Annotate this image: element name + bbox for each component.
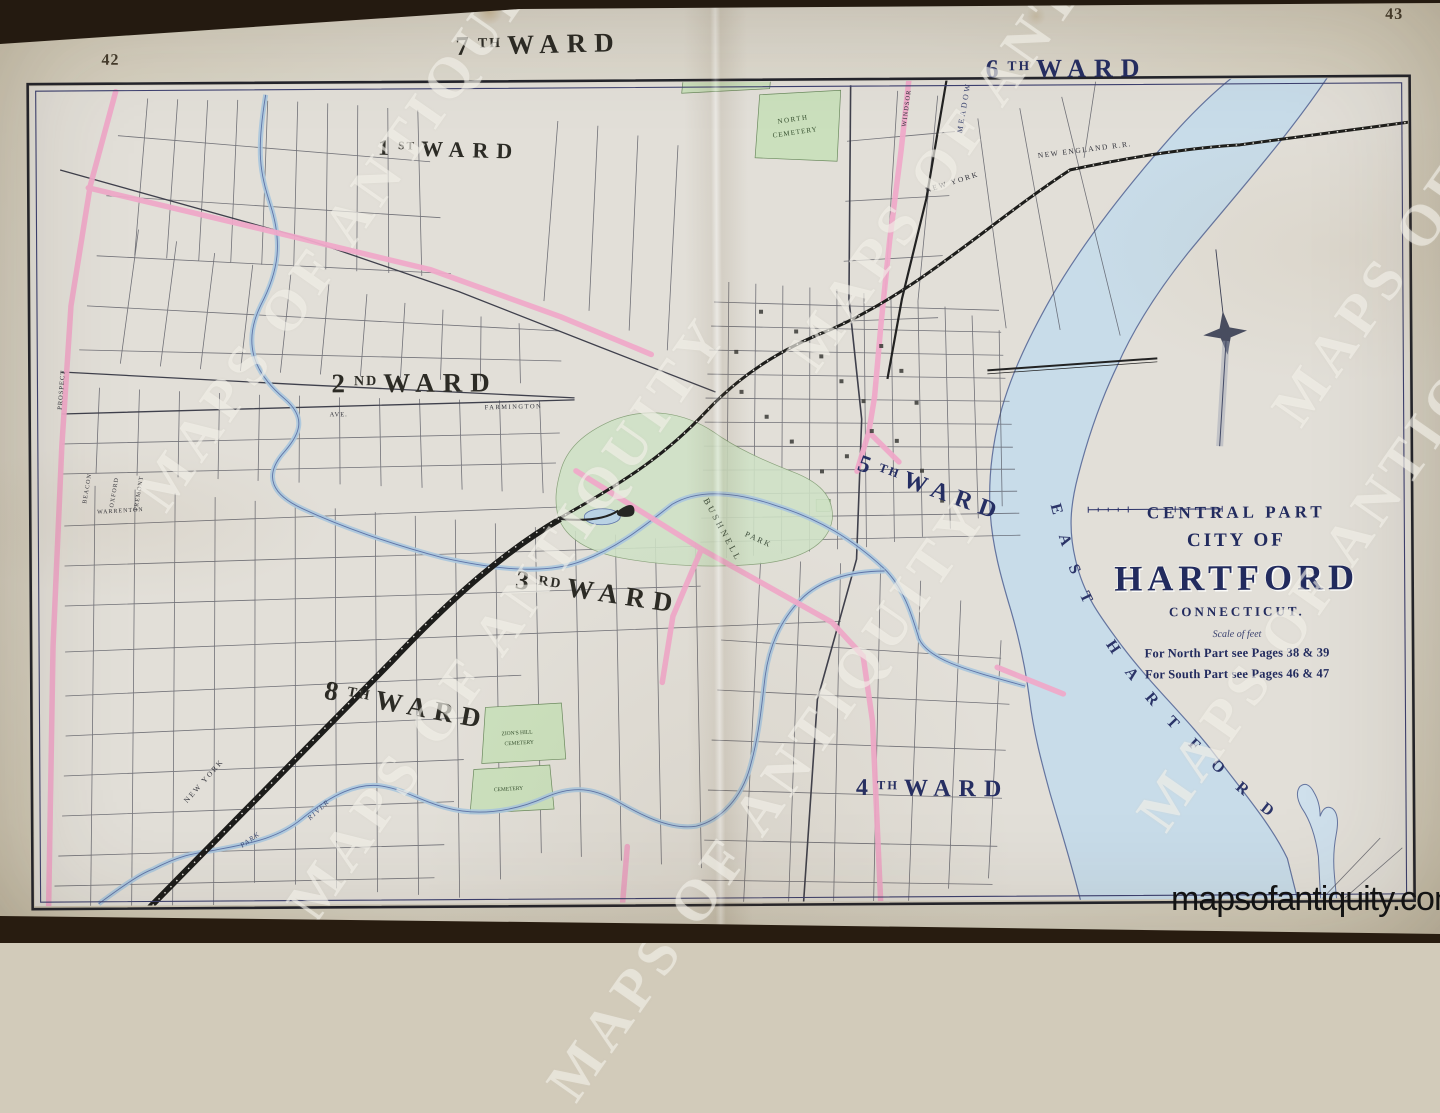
ward-label-6: 6THWARD [985, 55, 1147, 82]
ward-number: 7 [455, 31, 477, 61]
ward-ordinal: ND [354, 373, 378, 389]
ward-label-7: 7THWARD [455, 29, 622, 60]
ward-label-1: 1STWARD [378, 137, 521, 163]
ward-ordinal: TH [478, 35, 503, 52]
ward-label-2: 2NDWARD [331, 369, 497, 397]
antique-map-photo: { "page": { "left_page_number": "42", "r… [0, 0, 1440, 943]
ward-number: 1 [378, 135, 398, 161]
map-sheet: EAST HARTFORD FARMINGTON AVE. PROSPECT B… [0, 0, 1440, 947]
map-drawing: EAST HARTFORD FARMINGTON AVE. PROSPECT B… [0, 0, 1440, 947]
page-number-right: 43 [1385, 6, 1403, 24]
ward-word: WARD [1036, 53, 1148, 83]
stpatricks-label-1: ST. PATRICK'S [703, 61, 735, 68]
ward-word: WARD [421, 136, 521, 164]
note-south: For South Part see Pages 46 & 47 [1081, 666, 1393, 683]
ward-ordinal: TH [1007, 58, 1031, 73]
ward-ordinal: RD [537, 573, 563, 592]
scale-bar [1080, 503, 1230, 514]
title-block: CENTRAL PART CITY OF HARTFORD CONNECTICU… [1080, 502, 1393, 683]
ward-number: 3 [514, 564, 540, 597]
ward-number: 8 [322, 675, 349, 708]
website-text: mapsofantiquity.com [1171, 880, 1440, 919]
ward-number: 6 [985, 54, 1006, 83]
ward-ordinal: TH [346, 684, 373, 704]
ward-word: WARD [904, 775, 1010, 802]
ave-label: AVE. [330, 411, 348, 418]
ward-ordinal: TH [877, 778, 899, 792]
note-north: For North Part see Pages 38 & 39 [1081, 645, 1393, 662]
ward-ordinal: ST [398, 140, 416, 153]
ward-label-4: 4THWARD [856, 776, 1010, 802]
stpatricks-label-2: & HOLY TRINITY [700, 69, 740, 76]
ward-number: 4 [856, 775, 876, 801]
ward-number: 2 [331, 368, 353, 398]
title-line-2: CITY OF [1080, 529, 1392, 553]
ward-word: WARD [507, 27, 622, 60]
title-line-4: CONNECTICUT. [1081, 603, 1393, 621]
farmington-label: FARMINGTON [484, 403, 542, 411]
scale-label: Scale of feet [1081, 628, 1393, 641]
title-line-3: HARTFORD [1081, 556, 1393, 600]
page-number-left: 42 [101, 52, 119, 70]
ward-word: WARD [383, 367, 498, 398]
